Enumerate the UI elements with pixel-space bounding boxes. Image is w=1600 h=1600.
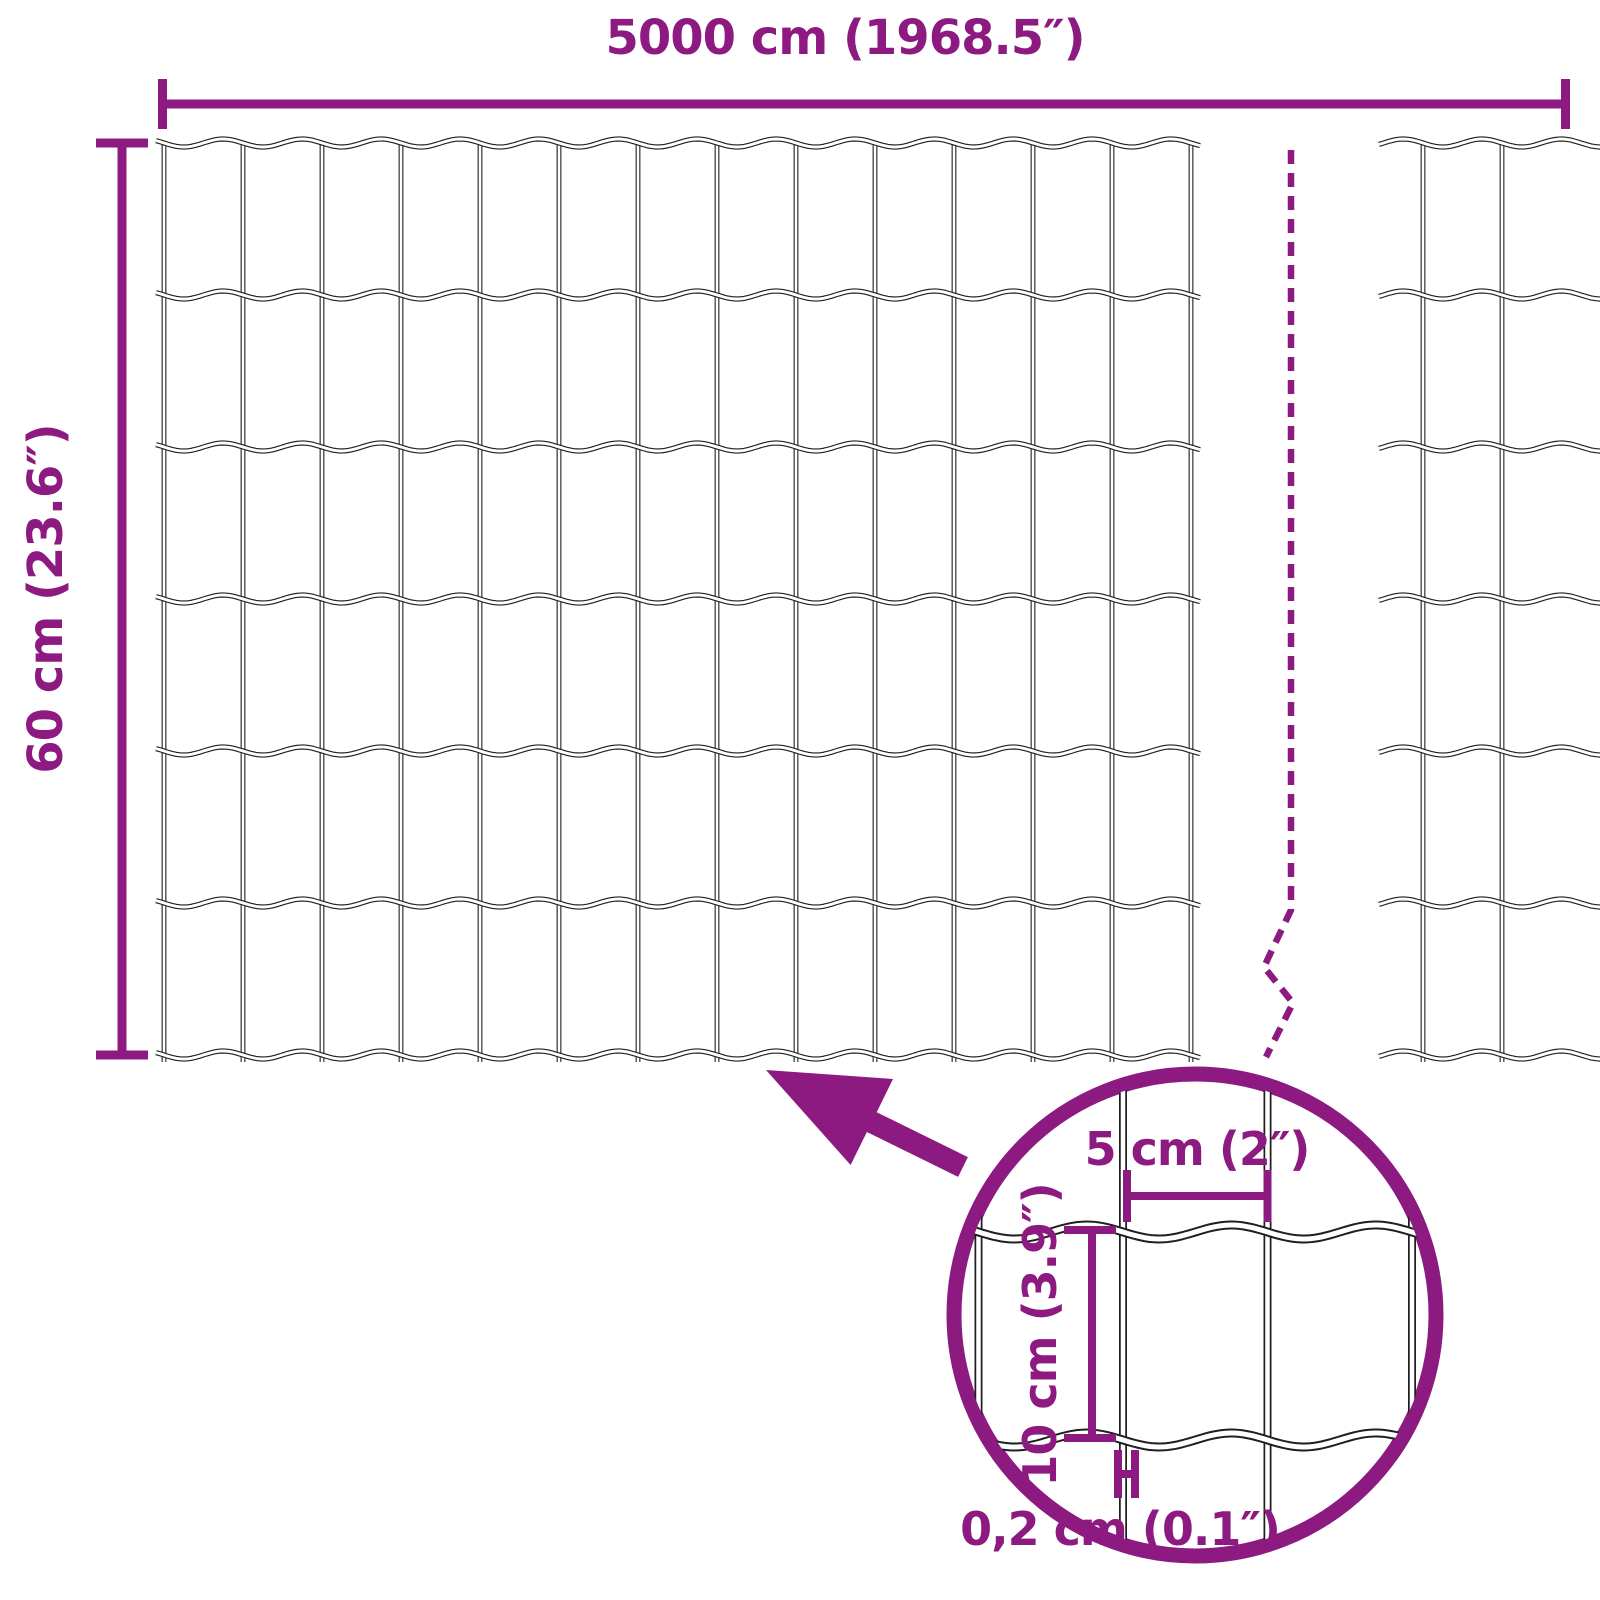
mesh-height-bottom-tick	[1064, 1434, 1116, 1442]
wire-thickness-right-tick	[1131, 1450, 1139, 1498]
fence-mesh-panel-continuation	[1379, 139, 1600, 1062]
fence-dimension-diagram: 5000 cm (1968.5″) 60 cm (23.6″) 5 cm (2″…	[0, 0, 1600, 1600]
continuation-break-line	[1264, 150, 1293, 1057]
height-dimension-label: 60 cm (23.6″)	[18, 424, 74, 773]
fence-mesh-panel	[156, 139, 1200, 1062]
mesh-width-label: 5 cm (2″)	[1085, 1122, 1310, 1176]
height-dimension-bottom-tick	[96, 1051, 148, 1060]
width-dimension-right-tick	[1561, 79, 1570, 129]
height-dimension: 60 cm (23.6″)	[18, 139, 148, 1060]
wire-thickness-left-tick	[1114, 1450, 1122, 1498]
wire-core	[1379, 899, 1600, 907]
wire-core	[1379, 443, 1600, 451]
mesh-width-line	[1123, 1192, 1272, 1200]
wire-thickness-line	[1121, 1470, 1132, 1478]
detail-magnifier: 5 cm (2″) 10 cm (3.9″) 0,2 cm (0.1″)	[950, 1074, 1442, 1556]
width-dimension-left-tick	[158, 79, 167, 129]
wire-core	[1379, 139, 1600, 147]
wire-thickness-label: 0,2 cm (0.1″)	[960, 1502, 1280, 1556]
wire-core	[1379, 595, 1600, 603]
mesh-height-line	[1088, 1230, 1096, 1440]
wire-core	[1379, 1051, 1600, 1059]
height-dimension-top-tick	[96, 139, 148, 148]
height-dimension-line	[118, 143, 127, 1055]
mesh-height-label: 10 cm (3.9″)	[1013, 1183, 1067, 1486]
mesh-height-top-tick	[1064, 1226, 1116, 1234]
width-dimension-label: 5000 cm (1968.5″)	[605, 10, 1084, 66]
magnifier-arrow-icon	[766, 1070, 968, 1177]
wire-core	[1379, 291, 1600, 299]
width-dimension: 5000 cm (1968.5″)	[158, 10, 1570, 129]
wire-core	[1379, 747, 1600, 755]
width-dimension-line	[158, 100, 1570, 109]
